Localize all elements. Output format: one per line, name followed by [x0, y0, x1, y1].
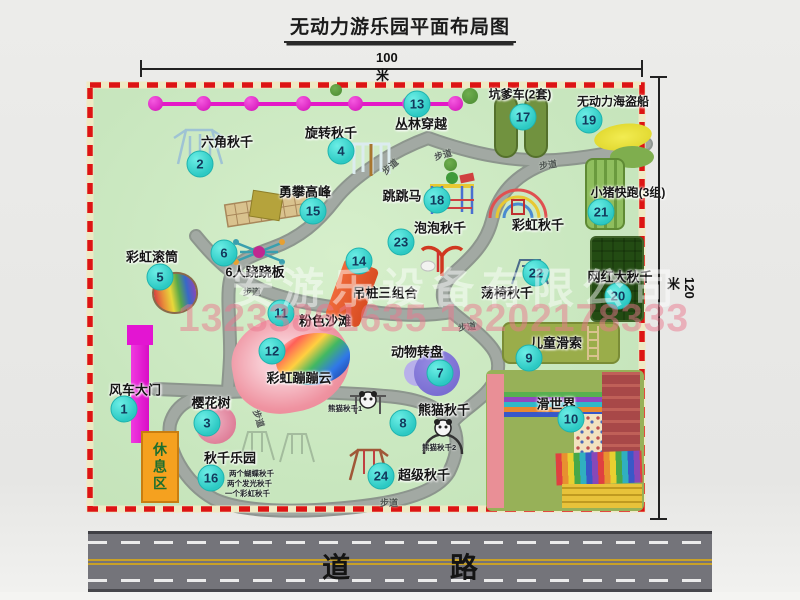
zipline-dot — [296, 96, 311, 111]
slide-world-pink-strip — [487, 374, 504, 508]
attraction-label-18: 跳跳马 — [382, 186, 421, 205]
attraction-label-24: 超级秋千 — [398, 465, 450, 484]
panda-swing-2-label: 熊猫秋千2 — [422, 442, 456, 453]
slide-world-yellow-slide — [562, 484, 642, 508]
attraction-badge-9: 9 — [516, 345, 543, 372]
attraction-label-15: 勇攀高峰 — [279, 182, 331, 201]
attraction-label-12: 彩虹蹦蹦云 — [266, 368, 331, 387]
attraction-badge-15: 15 — [300, 198, 327, 225]
walkway-label: 步道 — [538, 157, 558, 172]
attraction-label-4: 旋转秋千 — [305, 123, 357, 142]
attraction-badge-4: 4 — [328, 138, 355, 165]
attraction-label-rainbow-swing: 彩虹秋千 — [512, 215, 564, 234]
road-lane-marking — [88, 541, 712, 544]
walkway-label: 步道 — [380, 496, 398, 509]
slide-world-rainbow-slide — [555, 451, 642, 486]
panda-swing-1-label: 熊猫秋千1 — [328, 403, 362, 414]
attraction-badge-17: 17 — [510, 104, 537, 131]
attraction-badge-1: 1 — [111, 396, 138, 423]
rest-area: 休息区 — [141, 431, 179, 503]
rest-area-label: 休息区 — [150, 442, 170, 493]
attraction-badge-21: 21 — [588, 199, 615, 226]
zipline-dot — [244, 96, 259, 111]
attraction-badge-2: 2 — [187, 151, 214, 178]
attraction-label-23: 泡泡秋千 — [414, 218, 466, 237]
attraction-badge-10: 10 — [558, 406, 585, 433]
sidewalk — [0, 592, 800, 600]
attraction-label-1: 风车大门 — [109, 380, 161, 399]
attraction-label-7: 动物转盘 — [391, 342, 443, 361]
watermark-phone: 13233861635 13202178333 — [178, 297, 689, 341]
road-label: 道 路 — [88, 546, 712, 586]
attraction-badge-12: 12 — [259, 338, 286, 365]
slide-world-tower — [602, 372, 640, 456]
attraction-badge-8: 8 — [390, 410, 417, 437]
width-dimension-label: 100米 — [376, 50, 398, 84]
zipline-dot — [196, 96, 211, 111]
attraction-badge-13: 13 — [404, 91, 431, 118]
attraction-badge-7: 7 — [427, 360, 454, 387]
swing-park-note: 一个彩虹秋千 — [225, 488, 270, 499]
playground-layout-map: 无动力游乐园平面布局图 100米 120米 — [0, 0, 800, 600]
road: 道 路 — [88, 531, 712, 592]
attraction-badge-16: 16 — [198, 465, 225, 492]
attraction-label-8: 熊猫秋千 — [418, 400, 470, 419]
windmill-gate-top — [127, 325, 153, 345]
attraction-badge-18: 18 — [424, 187, 451, 214]
attraction-badge-24: 24 — [368, 463, 395, 490]
tree-icon — [330, 84, 342, 96]
attraction-label-2: 六角秋千 — [201, 132, 253, 151]
attraction-badge-5: 5 — [147, 264, 174, 291]
attraction-label-17: 坑爹车(2套) — [489, 86, 552, 103]
attraction-badge-3: 3 — [194, 410, 221, 437]
attraction-badge-19: 19 — [576, 107, 603, 134]
tree-icon — [462, 88, 478, 104]
attraction-label-3: 樱花树 — [191, 393, 230, 412]
page-title: 无动力游乐园平面布局图 — [0, 12, 800, 39]
zipline-dot — [448, 96, 463, 111]
zipline-dot — [348, 96, 363, 111]
zipline-dot — [148, 96, 163, 111]
attraction-label-5: 彩虹滚筒 — [126, 247, 178, 266]
attraction-badge-23: 23 — [388, 229, 415, 256]
